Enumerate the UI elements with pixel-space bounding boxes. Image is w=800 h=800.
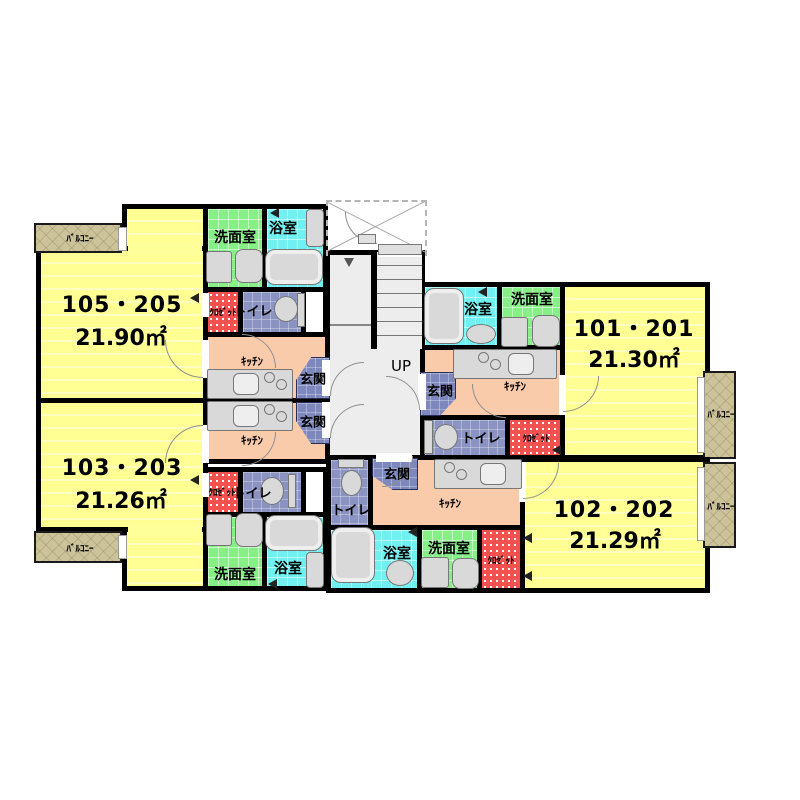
entrance-step bbox=[358, 234, 376, 244]
bath-counter bbox=[466, 324, 496, 344]
stove-burner bbox=[264, 372, 275, 383]
window bbox=[697, 377, 705, 453]
unit-102-toilet-label: トイレ bbox=[331, 500, 370, 519]
toilet-fixture bbox=[341, 470, 362, 496]
unit-103-entrance-label: 玄関 bbox=[300, 412, 326, 431]
unit-101-closet-label: ｸﾛｾﾞｯﾄ bbox=[522, 432, 549, 445]
kitchen-sink bbox=[233, 405, 259, 427]
unit-105-shaft bbox=[301, 287, 328, 337]
unit-105-bathroom-label: 浴室 bbox=[269, 218, 297, 238]
unit-103-room-join bbox=[128, 524, 202, 536]
window bbox=[118, 535, 127, 559]
wash-basin bbox=[532, 315, 560, 347]
unit-101-balcony-label: ﾊﾞﾙｺﾆｰ bbox=[707, 408, 734, 421]
unit-103-room-strip bbox=[122, 527, 208, 591]
toilet-tank bbox=[338, 459, 364, 468]
unit-103-number-label: 103・203 bbox=[62, 450, 183, 482]
unit-103-area-label: 21.26㎡ bbox=[75, 483, 167, 515]
window bbox=[118, 227, 127, 251]
unit-102-closet-label: ｸﾛｾﾞｯﾄ bbox=[487, 554, 514, 567]
washing-machine bbox=[206, 514, 232, 546]
wash-basin bbox=[452, 558, 479, 589]
stove-burner bbox=[276, 411, 287, 422]
unit-101-washroom-label: 洗面室 bbox=[511, 289, 553, 309]
unit-105-washroom-label: 洗面室 bbox=[214, 227, 256, 247]
stove-burner bbox=[444, 462, 455, 473]
stair-direction-arrow-icon bbox=[344, 258, 354, 267]
unit-101-entrance-label: 玄関 bbox=[427, 381, 453, 400]
closet-opening bbox=[202, 293, 209, 317]
wash-basin bbox=[235, 513, 263, 547]
door-fold-icon bbox=[190, 475, 199, 485]
door-fold-icon bbox=[478, 287, 487, 297]
door-fold-icon bbox=[190, 293, 199, 303]
bathtub bbox=[265, 515, 323, 551]
kitchen-sink bbox=[508, 353, 534, 375]
washing-machine bbox=[206, 251, 232, 283]
unit-105-area-label: 21.90㎡ bbox=[75, 320, 167, 352]
unit-103-toilet-label: トイレ bbox=[232, 483, 271, 502]
stove-burner bbox=[456, 469, 467, 480]
unit-102-balcony-label: ﾊﾞﾙｺﾆｰ bbox=[707, 500, 734, 513]
unit-103-shaft bbox=[301, 467, 328, 517]
unit-103-washroom-label: 洗面室 bbox=[214, 564, 256, 584]
unit-103-balcony-label: ﾊﾞﾙｺﾆｰ bbox=[66, 542, 93, 555]
unit-101-area-label: 21.30㎡ bbox=[588, 342, 680, 374]
door-fold-icon bbox=[268, 579, 277, 589]
bathtub bbox=[331, 527, 375, 583]
unit-101-number-label: 101・201 bbox=[574, 311, 695, 343]
unit-101-kitchen-label: ｷｯﾁﾝ bbox=[504, 378, 526, 394]
door-fold-icon bbox=[523, 533, 532, 543]
bathtub bbox=[424, 288, 464, 344]
unit-105-balcony-label: ﾊﾞﾙｺﾆｰ bbox=[66, 232, 93, 245]
stove-burner bbox=[264, 404, 275, 415]
stove-burner bbox=[276, 379, 287, 390]
unit-103-closet-label: ｸﾛｾﾞｯﾄ bbox=[208, 486, 235, 499]
washing-machine bbox=[501, 317, 528, 347]
unit-105-room-join bbox=[128, 243, 202, 255]
toilet-fixture bbox=[274, 296, 298, 322]
toilet-tank bbox=[297, 293, 305, 327]
toilet-tank bbox=[288, 474, 296, 508]
kitchen-sink bbox=[480, 463, 506, 485]
unit-103-kitchen-label: ｷｯﾁﾝ bbox=[241, 432, 263, 448]
door-fold-icon bbox=[270, 208, 279, 218]
shower-counter bbox=[306, 552, 324, 588]
unit-102-washroom-label: 洗面室 bbox=[428, 538, 470, 558]
unit-105-toilet-label: トイレ bbox=[233, 301, 272, 320]
unit-105-entrance-label: 玄関 bbox=[300, 369, 326, 388]
unit-101-toilet-label: トイレ bbox=[461, 428, 500, 447]
staircase-treads bbox=[377, 252, 422, 349]
unit-105-closet-label: ｸﾛｾﾞｯﾄ bbox=[209, 306, 236, 319]
shower-counter bbox=[306, 209, 324, 247]
unit-103-bathroom-label: 浴室 bbox=[274, 558, 302, 578]
kitchen-counter bbox=[453, 349, 557, 379]
landing-divider bbox=[330, 324, 371, 326]
bathtub bbox=[265, 249, 323, 285]
toilet-tank bbox=[424, 420, 433, 454]
unit-102-number-label: 102・202 bbox=[554, 492, 675, 524]
toilet-fixture bbox=[434, 424, 458, 450]
stairs-up-label: UP bbox=[391, 357, 411, 375]
unit-101-bathroom-label: 浴室 bbox=[464, 299, 492, 319]
unit-102-kitchen-label: ｷｯﾁﾝ bbox=[439, 495, 461, 511]
door-fold-icon bbox=[408, 527, 417, 537]
unit-105-kitchen-label: ｷｯﾁﾝ bbox=[241, 353, 263, 369]
wash-basin bbox=[235, 249, 263, 283]
entrance-threshold bbox=[378, 244, 422, 255]
unit-102-entrance-label: 玄関 bbox=[384, 464, 410, 483]
kitchen-sink bbox=[233, 373, 259, 395]
door-fold-icon bbox=[523, 571, 532, 581]
unit-102-area-label: 21.29㎡ bbox=[569, 523, 661, 555]
floor-plan: 105・205 21.90㎡ 103・203 21.26㎡ 101・201 21… bbox=[0, 0, 800, 800]
bath-counter bbox=[386, 560, 414, 586]
stove-burner bbox=[478, 352, 489, 363]
stove-burner bbox=[490, 359, 501, 370]
unit-105-number-label: 105・205 bbox=[62, 287, 183, 319]
stair-wall bbox=[371, 252, 377, 349]
washing-machine bbox=[421, 557, 449, 588]
door-fold-icon bbox=[552, 445, 561, 455]
window bbox=[697, 467, 705, 541]
unit-102-bathroom-label: 浴室 bbox=[383, 543, 411, 563]
